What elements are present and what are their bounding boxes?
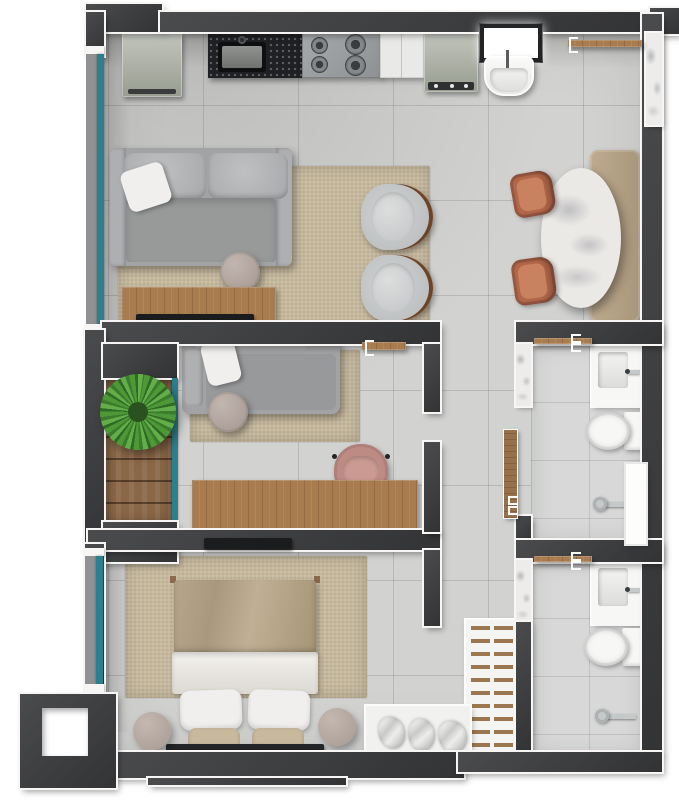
bedroom-wall-tv (204, 538, 292, 549)
bathroom1-marble-strip (516, 344, 531, 406)
window-trim-cap (85, 684, 104, 692)
washing-machine (424, 32, 478, 92)
wall-bedroom-right (424, 550, 440, 626)
office-side-table (208, 392, 248, 432)
daybed (182, 336, 340, 414)
towel-hook-icon (571, 552, 581, 561)
burner-icon (311, 37, 328, 54)
office-desk (192, 480, 418, 532)
ladder-rail (490, 626, 494, 750)
nightstand (318, 708, 356, 746)
wall-bathroom1-left-low (516, 516, 531, 542)
bathroom2-marble-strip (516, 560, 531, 624)
white-counter (380, 30, 424, 78)
dining-chair-seat (515, 176, 547, 212)
burner-icon (311, 56, 328, 73)
wall-bottom-left (100, 752, 464, 778)
toilet-bowl (586, 412, 630, 450)
towel-hook-icon (571, 561, 581, 570)
shower-glass-panel (626, 464, 646, 544)
wall-left-mid (85, 330, 104, 564)
dining-wall-shelf (568, 40, 642, 47)
bathroom1-door-leaf (504, 430, 517, 518)
shelf-bracket-icon (365, 340, 374, 356)
fridge-handle (128, 89, 176, 94)
daybed-back-cushion (185, 348, 203, 406)
sofa-back-cushion (208, 153, 288, 199)
kitchen-sink-basin (222, 46, 262, 68)
tank-basin (490, 68, 528, 92)
vanity-faucet-dot (625, 369, 630, 374)
barrel-armchair (361, 255, 433, 321)
bathroom1-toilet (586, 410, 644, 452)
apartment-floor-plan (0, 0, 679, 800)
window-trim-cap (86, 46, 104, 54)
bed (166, 576, 324, 758)
shower-head-icon (595, 709, 609, 723)
bed-blanket (174, 580, 316, 654)
wall-balcony-top (103, 344, 177, 378)
wall-office-hall-lower (424, 442, 440, 532)
door-handle-icon (508, 496, 517, 505)
shelf-bracket-icon (569, 37, 578, 53)
kitchen-sink (218, 42, 266, 72)
wall-bottom-right (458, 752, 662, 772)
burner-icon (345, 55, 366, 76)
closet-bench (366, 706, 470, 754)
shower-head-icon (593, 497, 607, 511)
cooktop (302, 30, 382, 78)
wall-top (160, 12, 656, 32)
coffee-table (220, 252, 260, 292)
counter-divider (401, 30, 402, 78)
washer-controls (428, 82, 474, 90)
service-shaft-block (20, 694, 116, 788)
window-trim-cap (85, 548, 104, 556)
wall-living-office (102, 322, 440, 344)
refrigerator (122, 33, 182, 97)
bathroom1-towel-bar (534, 338, 592, 344)
dining-chair-seat (517, 262, 548, 299)
wall-bottom-step (148, 778, 346, 785)
bathroom1-vanity (592, 342, 644, 406)
towel-hook-icon (571, 343, 581, 352)
armchair-cushion (371, 263, 415, 313)
washer-knob (464, 84, 468, 88)
washer-knob (434, 84, 438, 88)
living-glass-window (97, 54, 104, 332)
towel-hook-icon (571, 334, 581, 343)
laundry-tank (484, 56, 534, 96)
nightstand (133, 712, 171, 750)
armchair-cushion (371, 192, 415, 242)
wall-closet-bathroom2 (516, 622, 531, 754)
desk-chair-arm (385, 454, 390, 459)
barrel-armchair (361, 184, 433, 250)
bed-pillow (179, 689, 242, 731)
vanity-faucet-dot (625, 587, 630, 592)
bed-sheet-fold (172, 652, 318, 694)
folded-towel (407, 717, 435, 751)
wall-right (642, 14, 662, 754)
dining-chair (510, 255, 558, 306)
potted-palm-plant (100, 374, 176, 450)
bathroom2-towel-bar (534, 556, 592, 562)
granite-counter (208, 30, 302, 78)
closet-ladder-rack (466, 620, 518, 754)
desk-chair-arm (332, 454, 337, 459)
toilet-bowl (584, 628, 628, 666)
bedroom-glass-window (96, 556, 103, 684)
plant-center (128, 402, 148, 422)
burner-icon (345, 34, 366, 55)
washer-knob (450, 84, 454, 88)
bathroom2-vanity (592, 558, 644, 624)
folded-towel (437, 719, 467, 752)
bed-pillow (247, 689, 310, 731)
sofa (110, 148, 292, 266)
bathroom2-toilet (584, 626, 642, 668)
wall-office-hall-upper (424, 344, 440, 412)
vanity-basin (598, 352, 628, 388)
folded-towel (376, 715, 405, 750)
vanity-basin (598, 568, 628, 606)
service-shaft-opening (42, 708, 88, 756)
kitchen-faucet (238, 36, 246, 44)
dining-marble-accent (646, 33, 662, 125)
door-handle-icon (508, 506, 517, 515)
